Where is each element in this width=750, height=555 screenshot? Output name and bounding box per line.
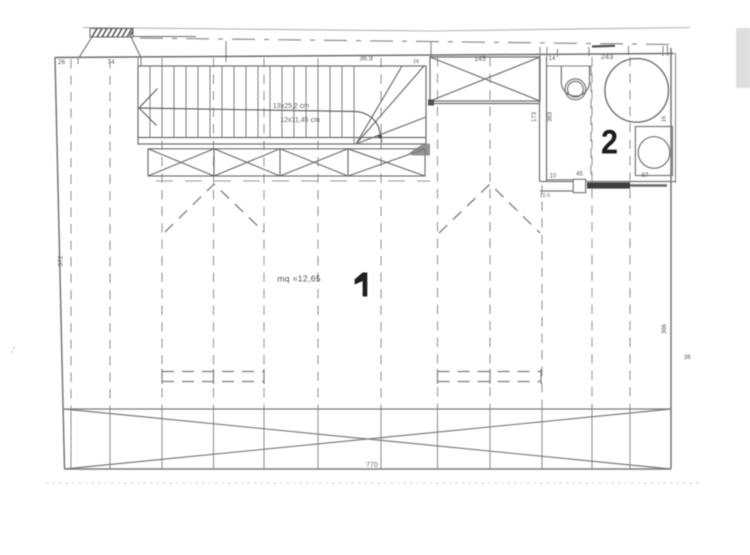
- svg-text:363: 363: [548, 111, 554, 122]
- svg-text:770: 770: [366, 462, 378, 469]
- svg-text:74: 74: [107, 59, 115, 66]
- svg-text:14: 14: [549, 56, 556, 62]
- svg-text:12x11,45 cm: 12x11,45 cm: [280, 117, 320, 124]
- svg-text:366: 366: [662, 323, 668, 334]
- svg-text:36: 36: [684, 355, 691, 361]
- svg-text:10: 10: [550, 174, 557, 180]
- svg-text:173: 173: [532, 111, 538, 122]
- svg-text:243: 243: [601, 52, 614, 61]
- svg-text:mq =12,65: mq =12,65: [277, 274, 321, 284]
- svg-text:16: 16: [413, 59, 419, 65]
- svg-text:145: 145: [474, 56, 486, 63]
- svg-text:10.5: 10.5: [540, 193, 551, 199]
- svg-text:,’: ,’: [11, 347, 15, 354]
- svg-text:87: 87: [642, 173, 649, 179]
- svg-text:16: 16: [662, 116, 668, 122]
- svg-text:36.9: 36.9: [359, 56, 373, 63]
- svg-text:26: 26: [58, 59, 66, 66]
- svg-text:13x25,2 cm: 13x25,2 cm: [273, 103, 309, 110]
- svg-text:45: 45: [576, 172, 583, 178]
- svg-text:2: 2: [601, 123, 618, 161]
- svg-text:372: 372: [58, 255, 65, 266]
